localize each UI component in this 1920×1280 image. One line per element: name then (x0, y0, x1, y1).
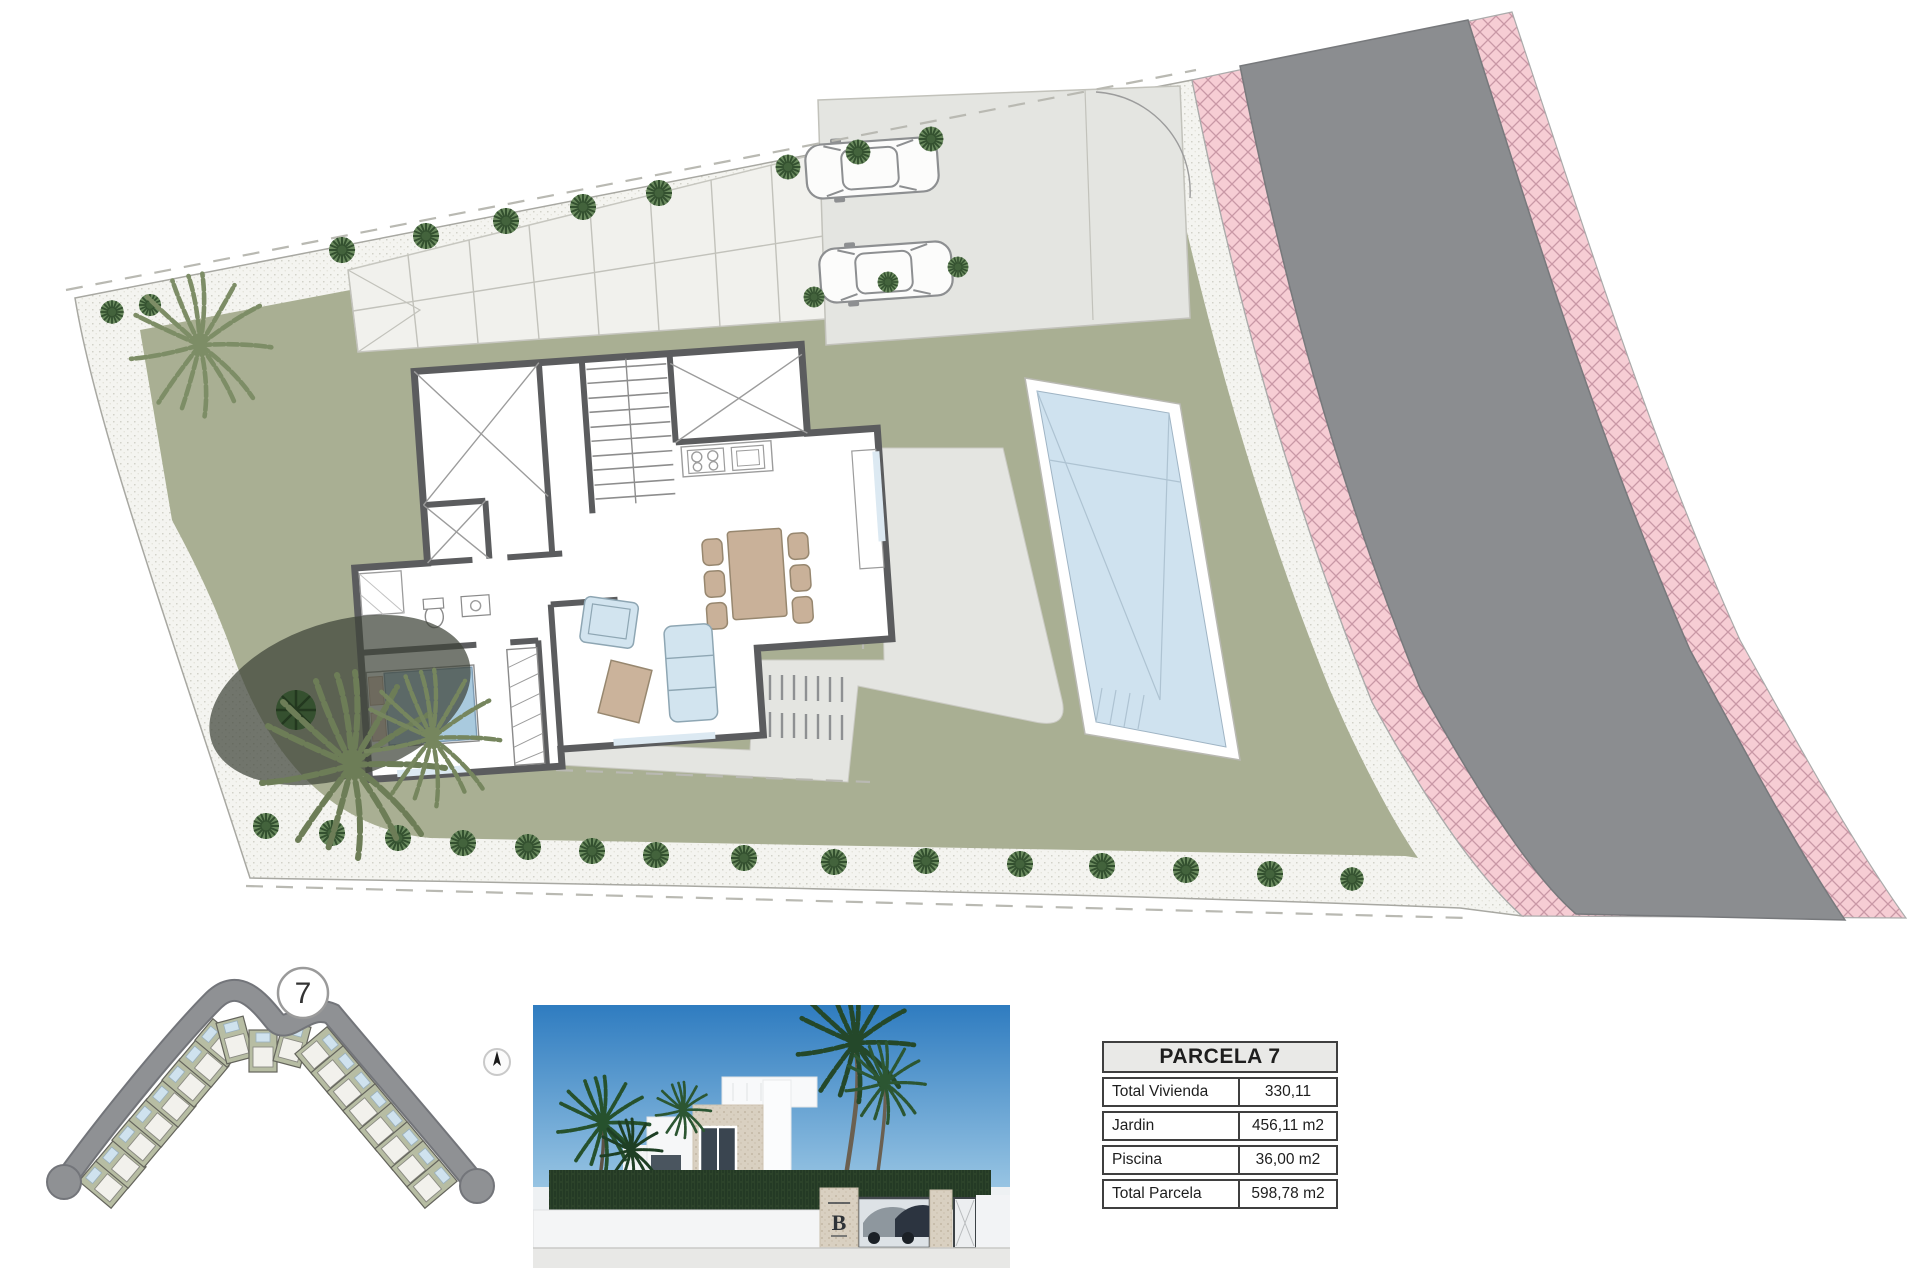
bush-icon (821, 849, 847, 875)
cul-de-sac (460, 1169, 494, 1203)
bush-icon (646, 180, 672, 206)
bush-icon (846, 140, 871, 165)
table-row-label: Jardin (1104, 1113, 1240, 1139)
photo-hedge-wall: B (533, 1170, 1010, 1250)
sink-icon (461, 595, 490, 617)
table-row-label: Piscina (1104, 1147, 1240, 1173)
bush-icon (878, 272, 899, 293)
villa-photo: B (533, 984, 1010, 1272)
parcel-table: PARCELA 7 Total Vivienda 330,11 Jardin 4… (1102, 1041, 1338, 1213)
bush-icon (1340, 867, 1363, 890)
bush-icon (731, 845, 757, 871)
table-row-label: Total Vivienda (1104, 1079, 1240, 1105)
bush-icon (493, 208, 519, 234)
bush-icon (570, 194, 596, 220)
bush-icon (1089, 853, 1115, 879)
cul-de-sac (47, 1165, 81, 1199)
photo-driveway (533, 1248, 1010, 1269)
gate-pillar (930, 1190, 952, 1248)
bush-icon (413, 223, 439, 249)
lot-marker: 7 (278, 968, 328, 1018)
development-site-map: 7 (47, 968, 494, 1208)
bush-icon (776, 155, 801, 180)
table-row: Total Parcela 598,78 m2 (1102, 1179, 1338, 1209)
bush-icon (1257, 861, 1283, 887)
table-row-label: Total Parcela (1104, 1181, 1240, 1207)
bush-icon (1173, 857, 1199, 883)
bush-icon (100, 300, 123, 323)
table-row-value: 598,78 m2 (1240, 1181, 1336, 1207)
table-row-value: 456,11 m2 (1240, 1113, 1336, 1139)
bush-icon (450, 830, 476, 856)
gate-logo: B (832, 1210, 847, 1235)
site-plan-canvas: 7 (0, 0, 1920, 1280)
table-row: Total Vivienda 330,11 (1102, 1077, 1338, 1107)
bush-icon (804, 287, 825, 308)
bush-icon (329, 237, 355, 263)
paved-path (348, 150, 840, 352)
north-compass-icon (484, 1049, 510, 1075)
bush-icon (919, 127, 944, 152)
dining-table (701, 526, 813, 629)
bush-icon (253, 813, 279, 839)
parking-area (804, 86, 1190, 345)
bush-icon (913, 848, 939, 874)
plan-sheet: 7 (0, 0, 1920, 1280)
bush-icon (1007, 851, 1033, 877)
bush-icon (579, 838, 605, 864)
villa-plot (249, 1030, 277, 1072)
lot-number-label: 7 (295, 977, 312, 1010)
table-row-value: 36,00 m2 (1240, 1147, 1336, 1173)
bush-icon (515, 834, 541, 860)
bush-icon (643, 842, 669, 868)
parcel-table-title: PARCELA 7 (1102, 1041, 1338, 1073)
table-row: Piscina 36,00 m2 (1102, 1145, 1338, 1175)
table-row: Jardin 456,11 m2 (1102, 1111, 1338, 1141)
bush-icon (948, 257, 969, 278)
table-row-value: 330,11 (1240, 1079, 1336, 1105)
